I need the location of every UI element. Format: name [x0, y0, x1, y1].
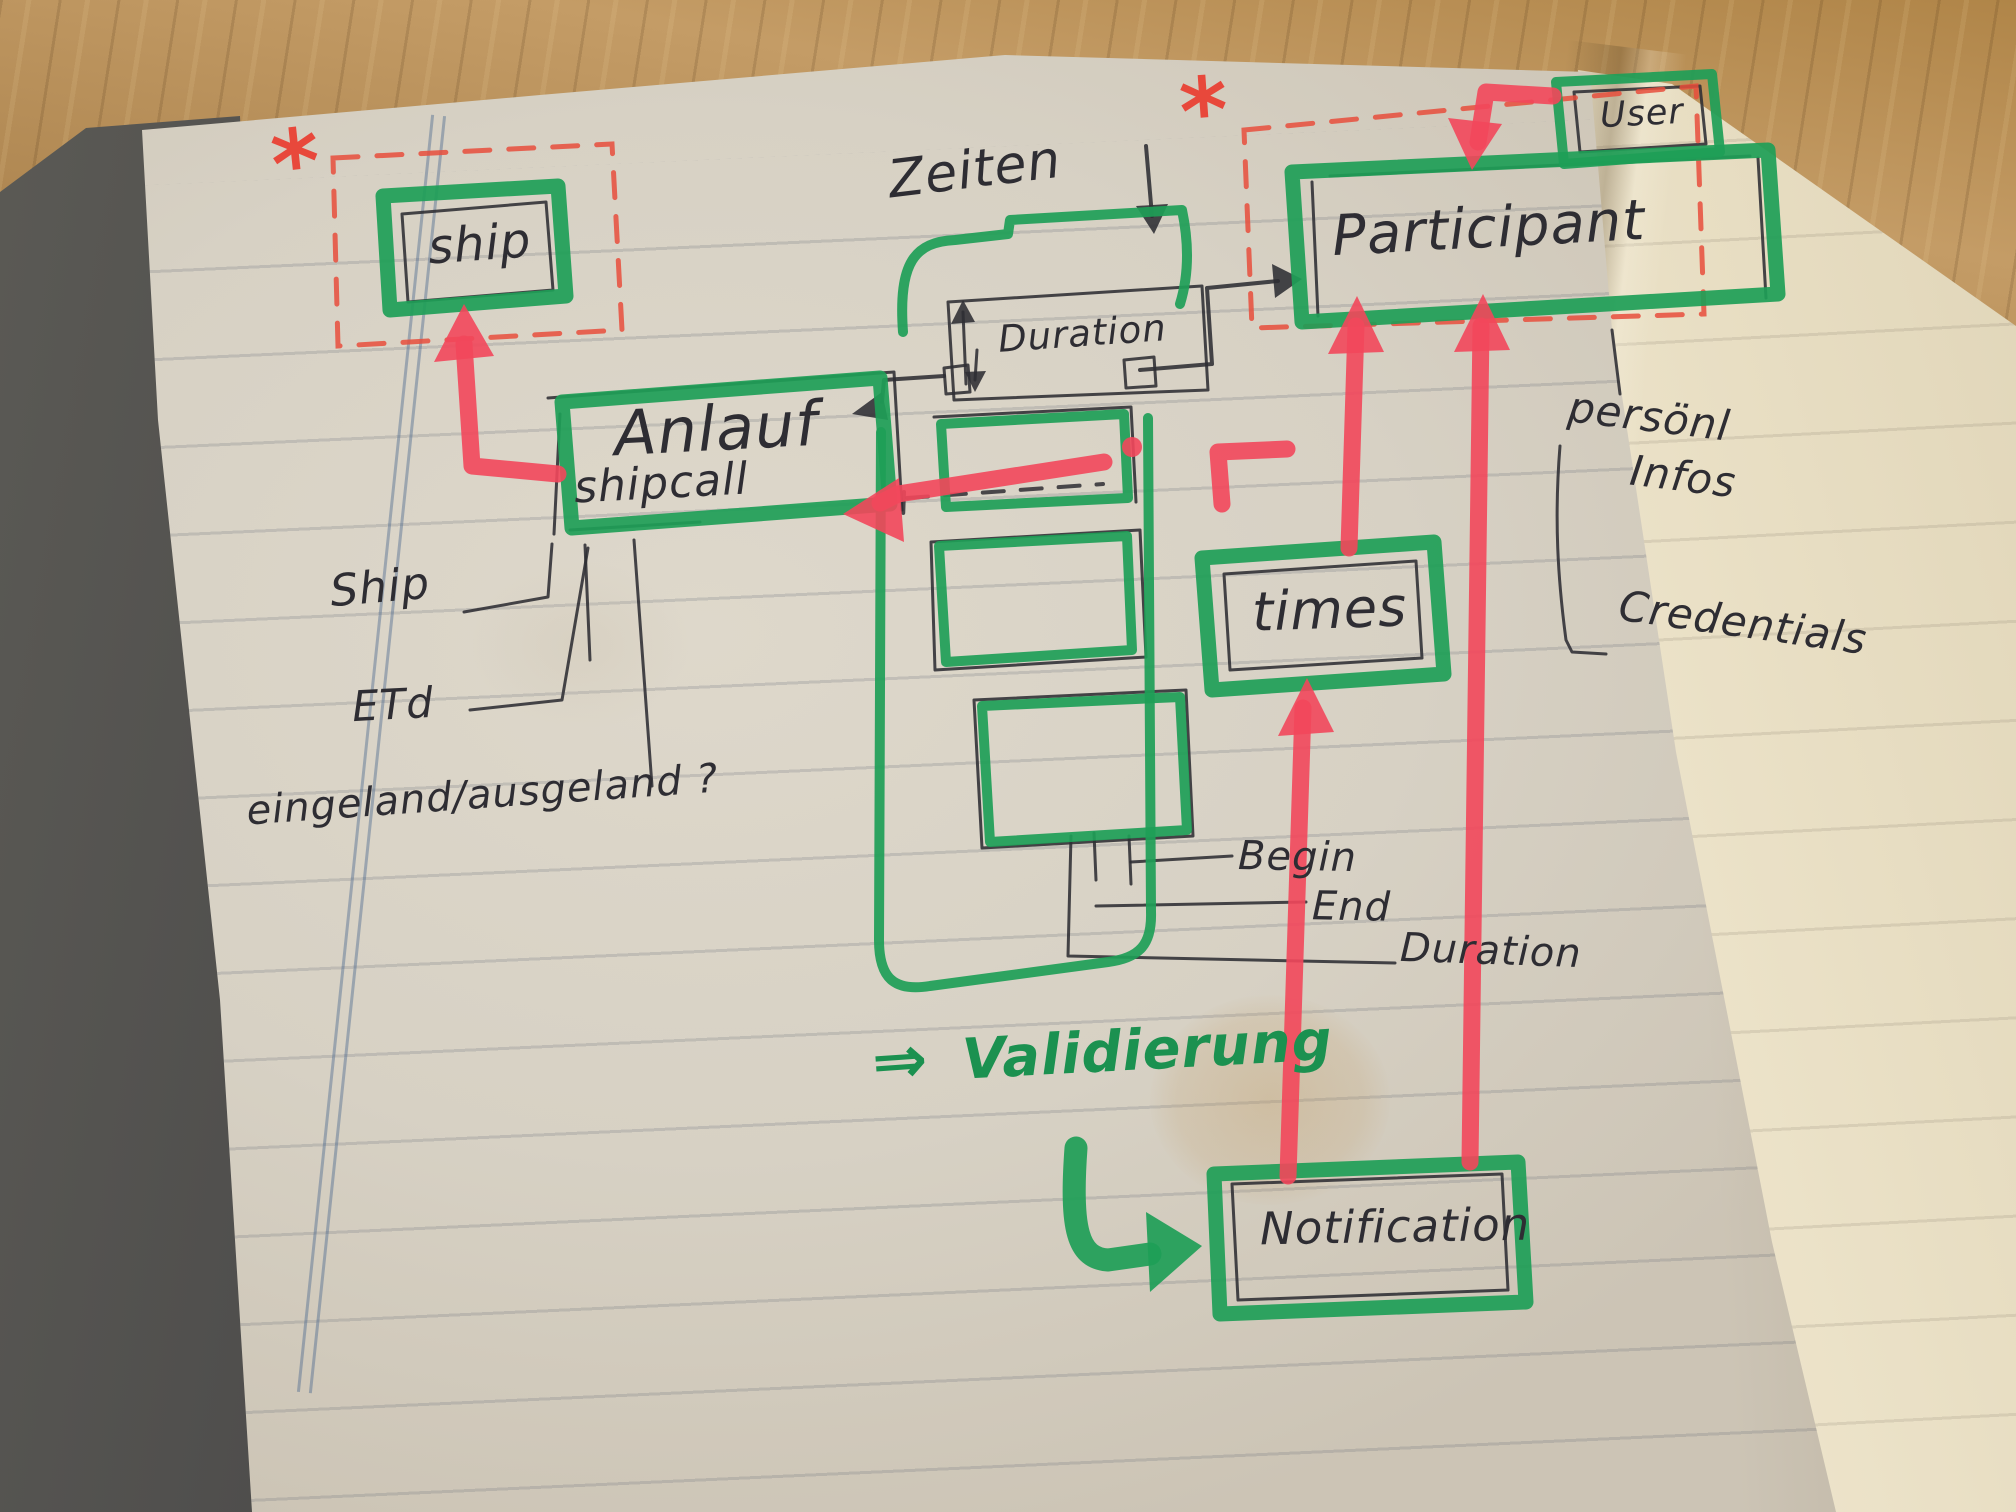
connector-etd [470, 548, 588, 710]
end-attribute-label: End [1312, 883, 1392, 930]
times-box-label: times [1251, 575, 1408, 643]
begin-attribute-label: Begin [1238, 833, 1358, 881]
etd-attribute-label: ETd [351, 678, 435, 731]
shipcall-box-label: shipcall [573, 453, 750, 513]
red-arrow-notification-to-participant [1454, 294, 1510, 1162]
red-arrow-to-anlauf [843, 437, 1287, 542]
duration-attribute-label: Duration [1399, 925, 1582, 977]
ship-box-label: ship [426, 212, 533, 275]
inner-box-2 [939, 536, 1132, 662]
inner-box-3 [982, 697, 1187, 842]
red-arrow-times-to-participant [1328, 296, 1384, 548]
ship-attribute-label: Ship [328, 558, 432, 618]
zeiten-down-arrow-icon [1136, 146, 1168, 234]
asterisk-participant: * [1177, 64, 1231, 159]
validation-arrow-icon: ⇒ [869, 1020, 931, 1101]
green-arrow-to-notification [1074, 1148, 1202, 1292]
connector-question [634, 540, 652, 786]
user-box-label: User [1599, 92, 1685, 136]
notebook-photo: * * Zeiten Duration ship Anlauf shipcall… [0, 0, 2016, 1512]
connector-credentials [1557, 446, 1606, 654]
connector-personal-infos [1612, 330, 1620, 394]
notification-box-label: Notification [1260, 1198, 1531, 1256]
diagram-ink [0, 0, 2016, 1512]
red-arrow-anlauf-to-ship [434, 304, 558, 474]
asterisk-ship: * [267, 116, 324, 213]
